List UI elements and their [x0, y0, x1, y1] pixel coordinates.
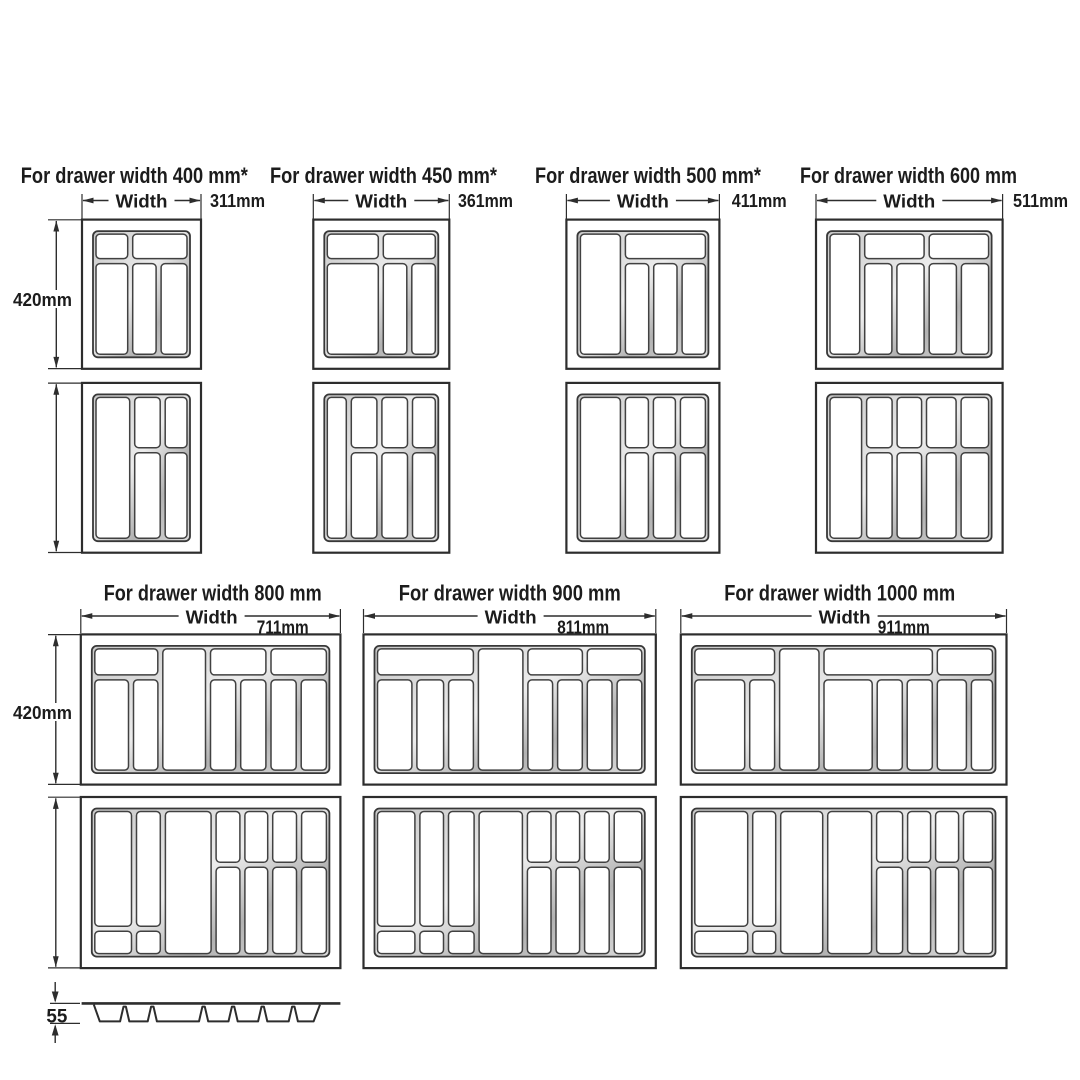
svg-text:Width: Width [485, 608, 537, 628]
svg-text:511mm: 511mm [1013, 191, 1068, 211]
svg-text:Width: Width [186, 608, 238, 628]
svg-text:55: 55 [46, 1006, 67, 1027]
svg-text:For drawer width 800 mm: For drawer width 800 mm [104, 581, 322, 606]
svg-text:For drawer width 600 mm: For drawer width 600 mm [800, 163, 1017, 188]
svg-text:For drawer width 900 mm: For drawer width 900 mm [399, 581, 621, 606]
svg-text:311mm: 311mm [210, 191, 265, 211]
svg-text:For drawer width 500 mm*: For drawer width 500 mm* [535, 163, 761, 188]
svg-text:Width: Width [116, 191, 168, 211]
svg-text:361mm: 361mm [458, 191, 513, 211]
svg-text:Width: Width [883, 191, 935, 211]
svg-text:420mm: 420mm [13, 702, 72, 723]
svg-text:For drawer width 1000 mm: For drawer width 1000 mm [724, 581, 955, 606]
svg-text:For drawer width 450 mm*: For drawer width 450 mm* [270, 163, 497, 188]
svg-text:Width: Width [617, 191, 669, 211]
svg-text:Width: Width [355, 191, 407, 211]
svg-text:411mm: 411mm [732, 191, 787, 211]
svg-text:For drawer width 400 mm*: For drawer width 400 mm* [21, 163, 248, 188]
svg-text:Width: Width [819, 608, 871, 628]
svg-text:420mm: 420mm [13, 289, 72, 310]
